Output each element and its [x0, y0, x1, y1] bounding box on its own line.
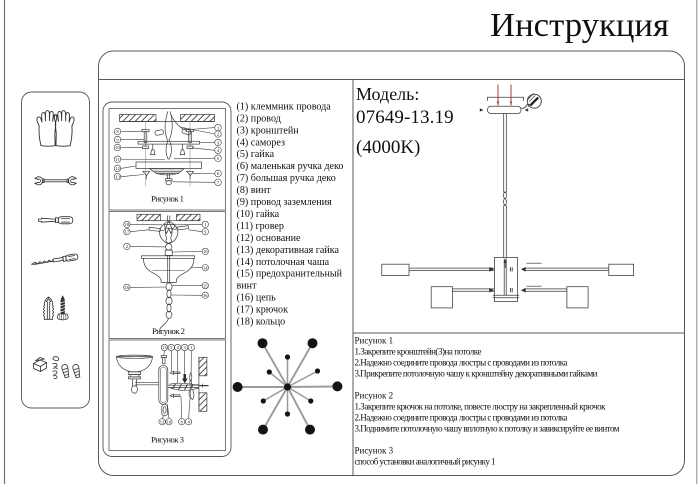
svg-text:Рисунок 1: Рисунок 1	[151, 194, 184, 204]
svg-text:Рисунок 2: Рисунок 2	[152, 326, 185, 336]
svg-text:18: 18	[125, 222, 130, 227]
svg-text:(5) гайка: (5) гайка	[237, 149, 275, 160]
svg-text:Инструкция: Инструкция	[490, 7, 669, 44]
svg-text:16: 16	[125, 285, 130, 290]
svg-text:3.Поднимите потолочную чашу вп: 3.Поднимите потолочную чашу вплотную к п…	[355, 424, 620, 434]
svg-text:(3) кронштейн: (3) кронштейн	[237, 125, 300, 136]
svg-text:10: 10	[115, 145, 120, 150]
svg-text:Рисунок 1: Рисунок 1	[355, 336, 394, 346]
svg-text:(17) крючок: (17) крючок	[237, 305, 289, 316]
svg-text:(7) большая ручка деко: (7) большая ручка деко	[237, 173, 336, 184]
svg-text:13: 13	[162, 345, 167, 350]
svg-text:16: 16	[167, 419, 172, 424]
svg-text:1.Закрепите кронштейн(3)на пот: 1.Закрепите кронштейн(3)на потолке	[355, 347, 482, 357]
svg-text:3.Прикрепите потолочную чашу к: 3.Прикрепите потолочную чашу к кронштейн…	[355, 369, 598, 379]
svg-text:14: 14	[203, 265, 208, 270]
svg-text:1.Закрепите крючок на потолке,: 1.Закрепите крючок на потолке, повесте л…	[355, 402, 607, 412]
svg-text:(14) потолочная чаша: (14) потолочная чаша	[237, 257, 330, 268]
svg-text:17: 17	[125, 229, 130, 234]
svg-text:07649-13.19: 07649-13.19	[356, 107, 454, 128]
svg-text:(11) гровер: (11) гровер	[237, 221, 284, 232]
svg-text:(9) провод заземления: (9) провод заземления	[237, 197, 333, 208]
svg-text:(16) цепь: (16) цепь	[237, 293, 277, 304]
svg-text:Рисунок 3: Рисунок 3	[355, 446, 394, 456]
svg-text:(1) клеммник провода: (1) клеммник провода	[237, 101, 332, 112]
svg-text:12: 12	[115, 166, 120, 171]
svg-text:(6) маленькая ручка деко: (6) маленькая ручка деко	[237, 161, 344, 172]
svg-text:Модель:: Модель:	[356, 84, 419, 104]
svg-text:13: 13	[115, 174, 120, 179]
svg-text:(8) винт: (8) винт	[237, 185, 272, 196]
svg-text:(10) гайка: (10) гайка	[237, 209, 280, 220]
svg-text:(2) провод: (2) провод	[237, 113, 281, 124]
svg-text:Рисунок 3: Рисунок 3	[151, 435, 184, 445]
svg-text:15: 15	[203, 283, 208, 288]
svg-text:11: 11	[115, 157, 120, 162]
svg-text:(18) кольцо: (18) кольцо	[237, 317, 286, 328]
svg-text:(15) предохранительный: (15) предохранительный	[237, 269, 343, 280]
svg-text:12: 12	[160, 419, 165, 424]
svg-text:(12) основание: (12) основание	[237, 233, 301, 244]
svg-text:(4) саморез: (4) саморез	[237, 137, 285, 148]
svg-text:способ установки аналогичный р: способ установки аналогичный рисунку 1	[355, 457, 496, 467]
svg-text:(4000K): (4000K)	[356, 137, 420, 158]
svg-text:2.Надежно соедините провода лю: 2.Надежно соедините провода люстры с про…	[355, 413, 568, 423]
svg-text:2.Надежно соедините провода лю: 2.Надежно соедините провода люстры с про…	[355, 358, 568, 368]
svg-text:(13) декоративная гайка: (13) декоративная гайка	[237, 245, 340, 256]
svg-text:16: 16	[203, 293, 208, 298]
svg-text:винт: винт	[237, 281, 258, 292]
svg-text:10: 10	[203, 249, 208, 254]
svg-text:Рисунок 2: Рисунок 2	[355, 391, 394, 401]
